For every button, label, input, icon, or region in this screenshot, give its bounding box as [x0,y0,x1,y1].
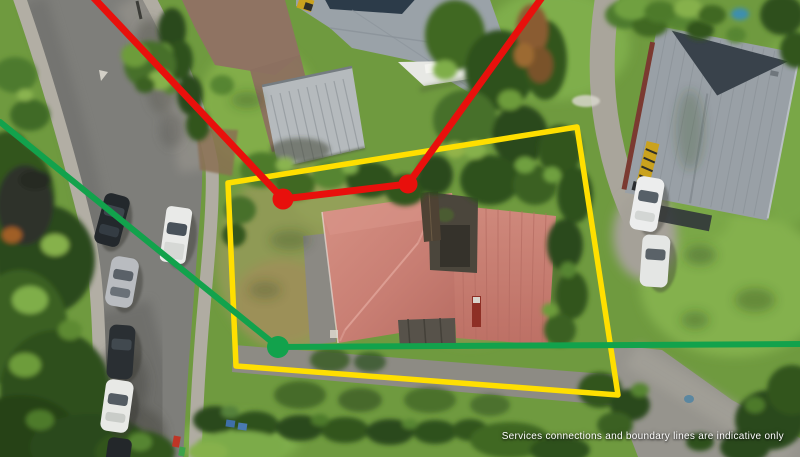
recycle-bin-1 [225,419,235,427]
recycle-bin-2 [237,422,247,430]
pool [731,8,749,20]
lawn-object [684,395,694,403]
green-service-dot [267,336,289,358]
white-fence [572,95,600,107]
disclaimer-caption: Services connections and boundary lines … [502,431,784,442]
house-main [322,191,570,348]
red-service-dot-1 [273,189,294,210]
aerial-photo-stage: Services connections and boundary lines … [0,0,800,457]
red-service-dot-2 [399,175,418,194]
aerial-photo [0,0,800,457]
